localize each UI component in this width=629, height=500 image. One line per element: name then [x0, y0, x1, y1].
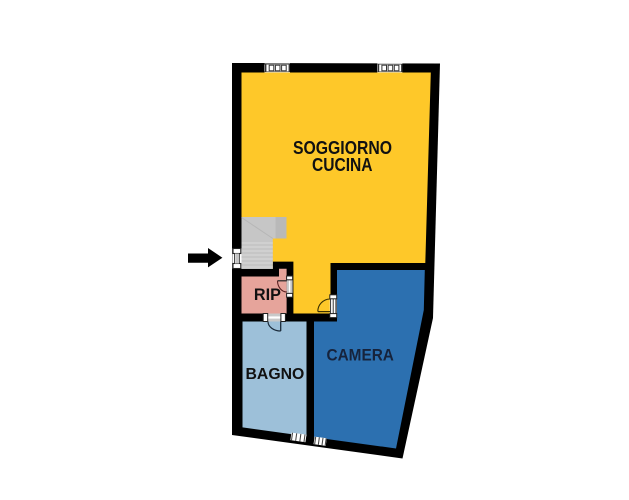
- svg-text:BAGNO: BAGNO: [246, 366, 305, 383]
- svg-text:CUCINA: CUCINA: [312, 154, 373, 175]
- svg-text:RIP: RIP: [254, 285, 281, 304]
- svg-text:CAMERA: CAMERA: [327, 347, 395, 365]
